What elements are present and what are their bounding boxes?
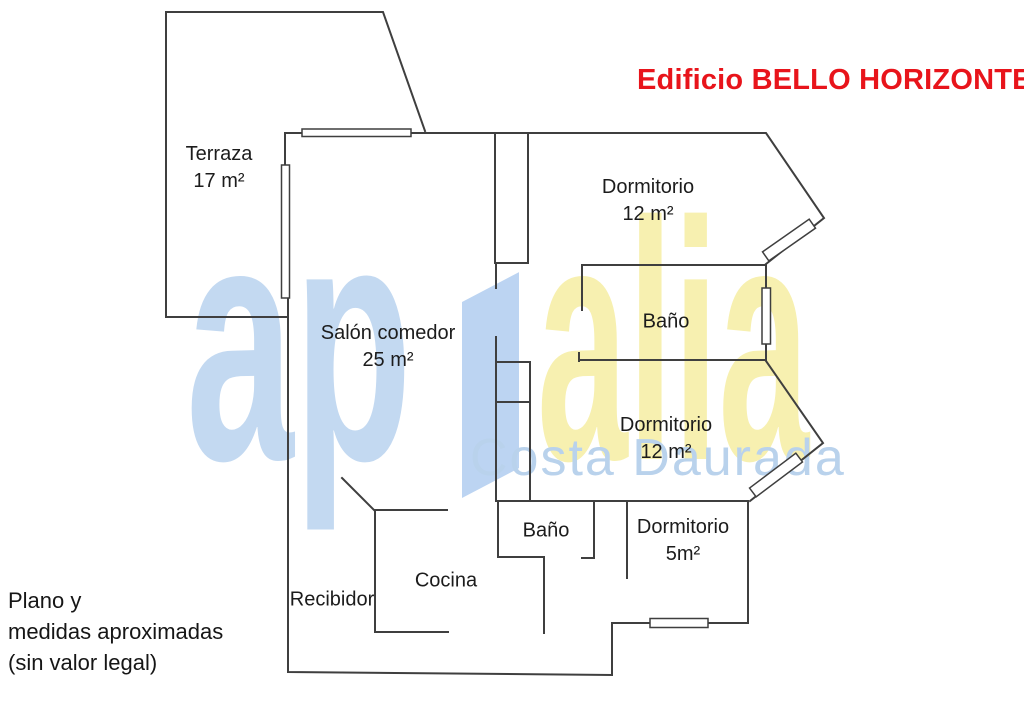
room-name: Baño bbox=[643, 309, 690, 336]
room-label-dormitorio-3: Dormitorio 5m² bbox=[637, 514, 729, 568]
room-name: Salón comedor bbox=[321, 320, 456, 347]
disclaimer-note: Plano y medidas aproximadas (sin valor l… bbox=[8, 585, 223, 678]
room-label-bano-1: Baño bbox=[643, 309, 690, 336]
room-area: 12 m² bbox=[620, 439, 712, 466]
room-label-terraza: Terraza 17 m² bbox=[186, 141, 253, 195]
building-title: Edificio BELLO HORIZONTE bbox=[637, 64, 1024, 97]
salon-top-window-icon bbox=[302, 129, 411, 137]
room-label-recibidor: Recibidor bbox=[290, 587, 374, 614]
room-name: Dormitorio bbox=[637, 514, 729, 541]
disclaimer-line-3: (sin valor legal) bbox=[8, 647, 223, 678]
dormitorio2-balcony-door-icon bbox=[750, 453, 803, 497]
room-label-dormitorio-1: Dormitorio 12 m² bbox=[602, 174, 694, 228]
room-name: Dormitorio bbox=[620, 412, 712, 439]
terraza-window-icon bbox=[282, 165, 290, 298]
room-area: 5m² bbox=[637, 541, 729, 568]
room-area: 17 m² bbox=[186, 168, 253, 195]
room-label-bano-2: Baño bbox=[523, 518, 570, 545]
room-label-salon: Salón comedor 25 m² bbox=[321, 320, 456, 374]
room-label-cocina: Cocina bbox=[415, 568, 477, 595]
floorplan-page: ap alia Costa Daurada bbox=[0, 0, 1024, 709]
room-name: Recibidor bbox=[290, 587, 374, 614]
door-markers bbox=[750, 219, 816, 497]
room-name: Dormitorio bbox=[602, 174, 694, 201]
room-label-dormitorio-2: Dormitorio 12 m² bbox=[620, 412, 712, 466]
bano1-window-icon bbox=[762, 288, 771, 344]
room-area: 25 m² bbox=[321, 347, 456, 374]
dormitorio3-window-icon bbox=[650, 619, 708, 628]
room-area: 12 m² bbox=[602, 201, 694, 228]
room-name: Terraza bbox=[186, 141, 253, 168]
room-name: Cocina bbox=[415, 568, 477, 595]
dormitorio1-balcony-door-icon bbox=[762, 219, 815, 261]
disclaimer-line-2: medidas aproximadas bbox=[8, 616, 223, 647]
disclaimer-line-1: Plano y bbox=[8, 585, 223, 616]
room-name: Baño bbox=[523, 518, 570, 545]
